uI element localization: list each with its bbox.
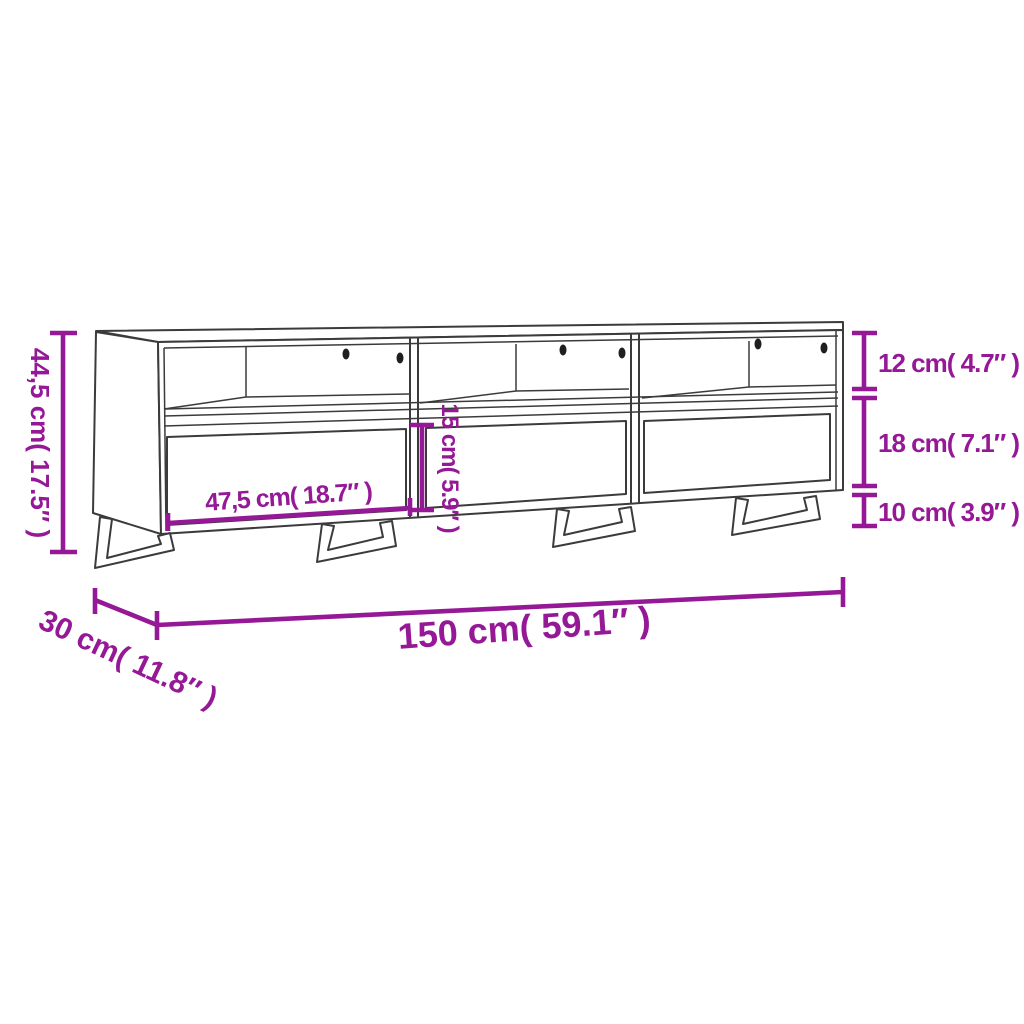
shelf-opening-height-label: 12 cm( 4.7″ ) <box>878 348 1019 378</box>
drawer-front-height-label: 18 cm( 7.1″ ) <box>878 428 1019 458</box>
leg-height-label: 10 cm( 3.9″ ) <box>878 497 1019 527</box>
tv-cabinet-drawing <box>93 322 843 568</box>
dim-leg-height <box>852 495 877 526</box>
cabinet-leg <box>317 521 396 562</box>
cable-hole-icon <box>343 349 350 360</box>
cable-hole-icon <box>619 348 626 359</box>
cable-hole-icon <box>397 353 404 364</box>
overall-height-label: 44,5 cm( 17.5″ ) <box>25 348 55 538</box>
drawer-opening-height-label: 15 cm( 5.9″ ) <box>436 403 463 532</box>
dim-shelf-opening-height <box>852 333 877 389</box>
cabinet-left-side <box>93 332 161 534</box>
dimension-diagram-svg: 44,5 cm( 17.5″ ) 12 cm( 4.7″ ) 18 cm( 7.… <box>0 0 1024 1024</box>
cabinet-leg <box>732 496 820 535</box>
cable-hole-icon <box>560 345 567 356</box>
overall-depth-label: 30 cm( 11.8″ ) <box>34 604 223 715</box>
diagram-canvas: 44,5 cm( 17.5″ ) 12 cm( 4.7″ ) 18 cm( 7.… <box>0 0 1024 1024</box>
cabinet-leg <box>553 507 635 547</box>
dimension-line <box>95 600 157 625</box>
dim-overall-depth <box>95 588 157 625</box>
cable-hole-icon <box>755 339 762 350</box>
overall-width-label: 150 cm( 59.1″ ) <box>396 598 652 657</box>
dim-drawer-front-height <box>852 398 877 486</box>
cable-hole-icon <box>821 343 828 354</box>
